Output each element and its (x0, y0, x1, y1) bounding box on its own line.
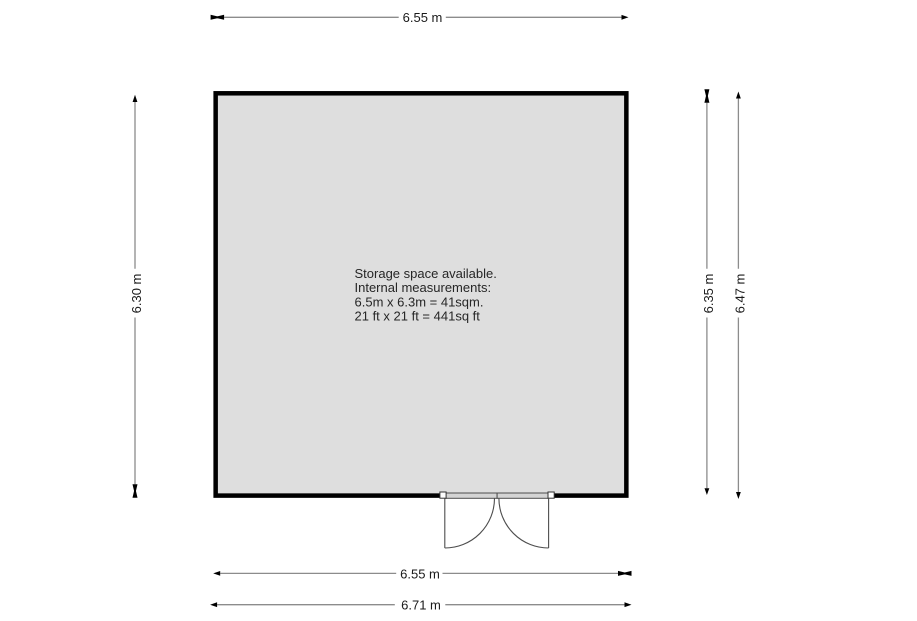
svg-text:6.5m x 6.3m = 41sqm.: 6.5m x 6.3m = 41sqm. (355, 294, 484, 309)
svg-text:6.47 m: 6.47 m (732, 274, 747, 314)
svg-text:6.55 m: 6.55 m (400, 566, 440, 581)
svg-text:6.71 m: 6.71 m (401, 597, 441, 612)
svg-text:Storage space available.: Storage space available. (355, 266, 497, 281)
svg-text:21 ft x 21 ft = 441sq ft: 21 ft x 21 ft = 441sq ft (355, 308, 481, 323)
svg-text:Internal measurements:: Internal measurements: (355, 280, 492, 295)
svg-text:6.55 m: 6.55 m (403, 10, 443, 25)
svg-text:6.30 m: 6.30 m (129, 274, 144, 314)
svg-text:6.35 m: 6.35 m (701, 274, 716, 314)
